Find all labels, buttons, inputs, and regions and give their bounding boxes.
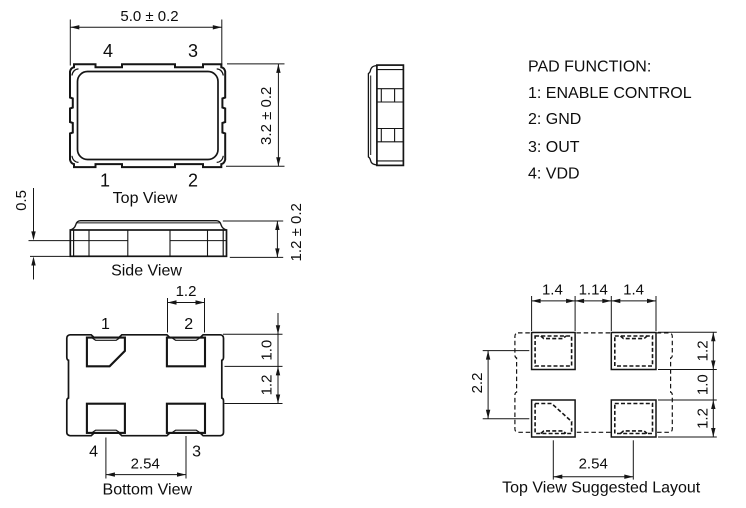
svg-text:4: 4	[89, 443, 98, 460]
svg-text:Top View Suggested Layout: Top View Suggested Layout	[502, 480, 701, 497]
svg-text:2.54: 2.54	[579, 456, 608, 473]
svg-text:1: ENABLE CONTROL: 1: ENABLE CONTROL	[528, 85, 692, 102]
svg-text:PAD FUNCTION:: PAD FUNCTION:	[528, 58, 651, 75]
svg-text:2: 2	[188, 171, 198, 191]
svg-text:1.0: 1.0	[259, 340, 276, 361]
svg-text:Top View: Top View	[113, 190, 178, 207]
svg-text:0.5: 0.5	[13, 190, 30, 211]
svg-text:1.14: 1.14	[579, 282, 608, 299]
svg-text:1.2 ± 0.2: 1.2 ± 0.2	[288, 203, 305, 261]
svg-text:1.2: 1.2	[695, 408, 712, 429]
svg-text:1: 1	[100, 171, 110, 191]
svg-text:1.0: 1.0	[695, 374, 712, 395]
svg-text:2.2: 2.2	[469, 373, 486, 394]
svg-text:1.4: 1.4	[623, 282, 644, 299]
svg-text:3: 3	[192, 443, 201, 460]
svg-text:4: VDD: 4: VDD	[528, 166, 580, 183]
svg-text:1.4: 1.4	[542, 282, 563, 299]
svg-text:4: 4	[103, 41, 113, 61]
svg-text:5.0 ± 0.2: 5.0 ± 0.2	[120, 8, 178, 25]
svg-text:1.2: 1.2	[695, 340, 712, 361]
svg-text:2: GND: 2: GND	[528, 111, 581, 128]
svg-text:Bottom View: Bottom View	[103, 481, 193, 498]
svg-text:1.2: 1.2	[259, 375, 276, 396]
svg-text:3: OUT: 3: OUT	[528, 139, 580, 156]
svg-text:2.54: 2.54	[131, 456, 160, 473]
svg-text:1.2: 1.2	[176, 283, 197, 300]
svg-text:2: 2	[184, 316, 193, 333]
svg-text:3.2 ± 0.2: 3.2 ± 0.2	[258, 87, 275, 145]
svg-text:Side View: Side View	[111, 262, 182, 279]
svg-text:3: 3	[188, 41, 198, 61]
svg-text:1: 1	[101, 316, 110, 333]
